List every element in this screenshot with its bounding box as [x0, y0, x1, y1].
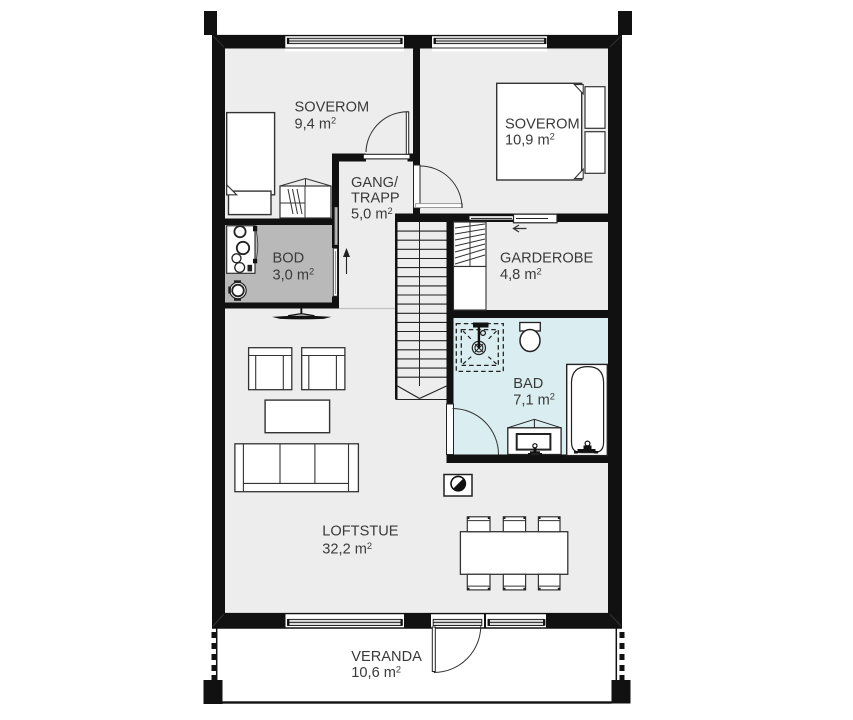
svg-text:TRAPP: TRAPP [351, 190, 400, 206]
svg-text:10,6 m2: 10,6 m2 [351, 664, 401, 681]
svg-text:LOFTSTUE: LOFTSTUE [322, 524, 398, 540]
svg-text:7,1 m2: 7,1 m2 [513, 392, 555, 409]
svg-text:3,0 m2: 3,0 m2 [273, 267, 315, 284]
svg-text:SOVEROM: SOVEROM [505, 116, 580, 132]
svg-text:4,8 m2: 4,8 m2 [500, 266, 542, 283]
svg-text:9,4 m2: 9,4 m2 [295, 116, 337, 133]
svg-text:GANG/: GANG/ [351, 175, 399, 191]
svg-text:SOVEROM: SOVEROM [295, 100, 370, 116]
svg-text:GARDEROBE: GARDEROBE [500, 250, 594, 266]
svg-text:VERANDA: VERANDA [351, 649, 422, 665]
svg-text:5,0 m2: 5,0 m2 [351, 206, 393, 223]
svg-text:32,2 m2: 32,2 m2 [322, 541, 372, 558]
svg-text:10,9 m2: 10,9 m2 [505, 132, 555, 149]
svg-text:BOD: BOD [273, 250, 305, 266]
svg-text:BAD: BAD [513, 376, 543, 392]
